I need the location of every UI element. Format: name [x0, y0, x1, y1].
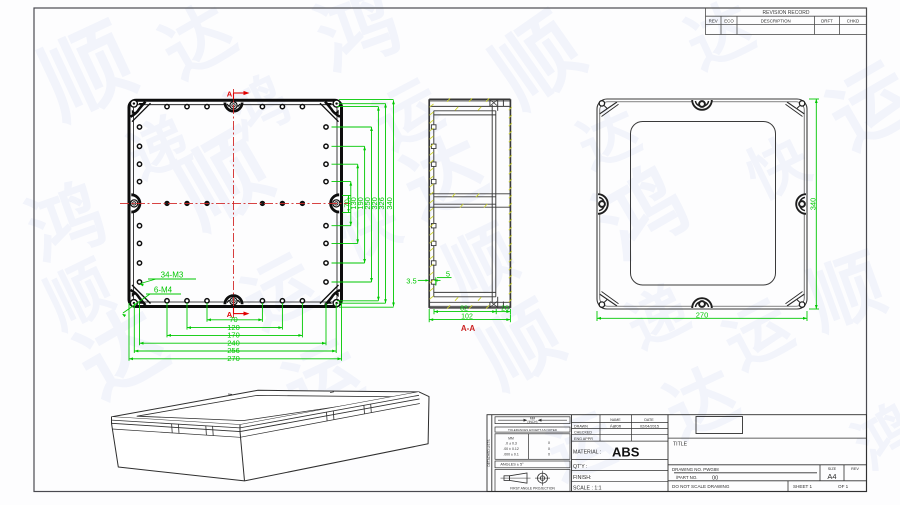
svg-text:340: 340: [808, 198, 817, 211]
svg-text:.0 ± 0.3: .0 ± 0.3: [505, 442, 517, 446]
svg-text:FINISH:: FINISH:: [573, 475, 591, 481]
svg-text:270: 270: [227, 354, 240, 363]
svg-text:102: 102: [461, 314, 473, 321]
svg-text:00: 00: [712, 475, 718, 481]
svg-text:MATERIAL :: MATERIAL :: [573, 450, 601, 456]
svg-text:SCALE : 1:1: SCALE : 1:1: [573, 485, 602, 491]
svg-text:82: 82: [460, 306, 468, 313]
svg-text:SIZE: SIZE: [828, 467, 837, 471]
svg-text:DRAWN: DRAWN: [574, 424, 588, 428]
svg-text:(INCH): (INCH): [528, 420, 538, 424]
svg-text:3.5: 3.5: [406, 276, 416, 285]
svg-text:FIRST ANGLE PROJECTION: FIRST ANGLE PROJECTION: [510, 486, 555, 490]
svg-text:270: 270: [696, 310, 709, 319]
svg-text:DATE: DATE: [644, 418, 654, 422]
svg-text:ENG APPR: ENG APPR: [574, 437, 593, 441]
svg-text:02/04/2015: 02/04/2015: [640, 424, 659, 428]
svg-text:OF 1: OF 1: [838, 484, 849, 489]
svg-text:DESCRIPTION: DESCRIPTION: [761, 19, 791, 24]
svg-text:NAME: NAME: [610, 418, 621, 422]
svg-text:DRFT: DRFT: [821, 19, 833, 24]
svg-text:QT'Y :: QT'Y :: [573, 464, 587, 470]
svg-text:CHKD: CHKD: [847, 19, 859, 24]
svg-text:6-M4: 6-M4: [154, 286, 173, 295]
svg-text:/PART NO.: /PART NO.: [676, 475, 697, 480]
svg-text:A: A: [227, 90, 233, 99]
svg-text:ANGLES ± 5°: ANGLES ± 5°: [500, 463, 524, 467]
svg-text:340: 340: [385, 197, 394, 210]
svg-text:.000 ± 0.1: .000 ± 0.1: [503, 452, 519, 456]
svg-text:ABS: ABS: [612, 445, 640, 460]
svg-text:SHEET 1: SHEET 1: [793, 484, 813, 489]
svg-text:ECO: ECO: [724, 19, 734, 24]
svg-text:5: 5: [446, 269, 450, 278]
svg-text:A-A: A-A: [461, 324, 475, 333]
svg-text:.00 ± 0.12: .00 ± 0.12: [503, 447, 519, 451]
svg-text:DRAWING NO. PWG88: DRAWING NO. PWG88: [672, 467, 719, 472]
svg-text:TOLERANCES EXCEPT AS NOTED: TOLERANCES EXCEPT AS NOTED: [508, 428, 558, 432]
svg-text:34-M3: 34-M3: [161, 271, 184, 280]
svg-text:CHECKED: CHECKED: [574, 431, 592, 435]
svg-text:REV: REV: [851, 467, 859, 471]
svg-text:REV: REV: [709, 19, 718, 24]
svg-text:REVISION RECORD: REVISION RECORD: [763, 10, 810, 16]
svg-text:Aaron: Aaron: [610, 424, 622, 429]
svg-text:A4: A4: [827, 472, 836, 481]
svg-text:DO NOT SCALE DRAWING: DO NOT SCALE DRAWING: [672, 484, 730, 489]
svg-text:MM: MM: [508, 436, 514, 440]
svg-text:TITLE: TITLE: [673, 441, 688, 447]
svg-text:20: 20: [501, 306, 509, 313]
svg-text:DETACHED LISTS: DETACHED LISTS: [487, 439, 491, 466]
